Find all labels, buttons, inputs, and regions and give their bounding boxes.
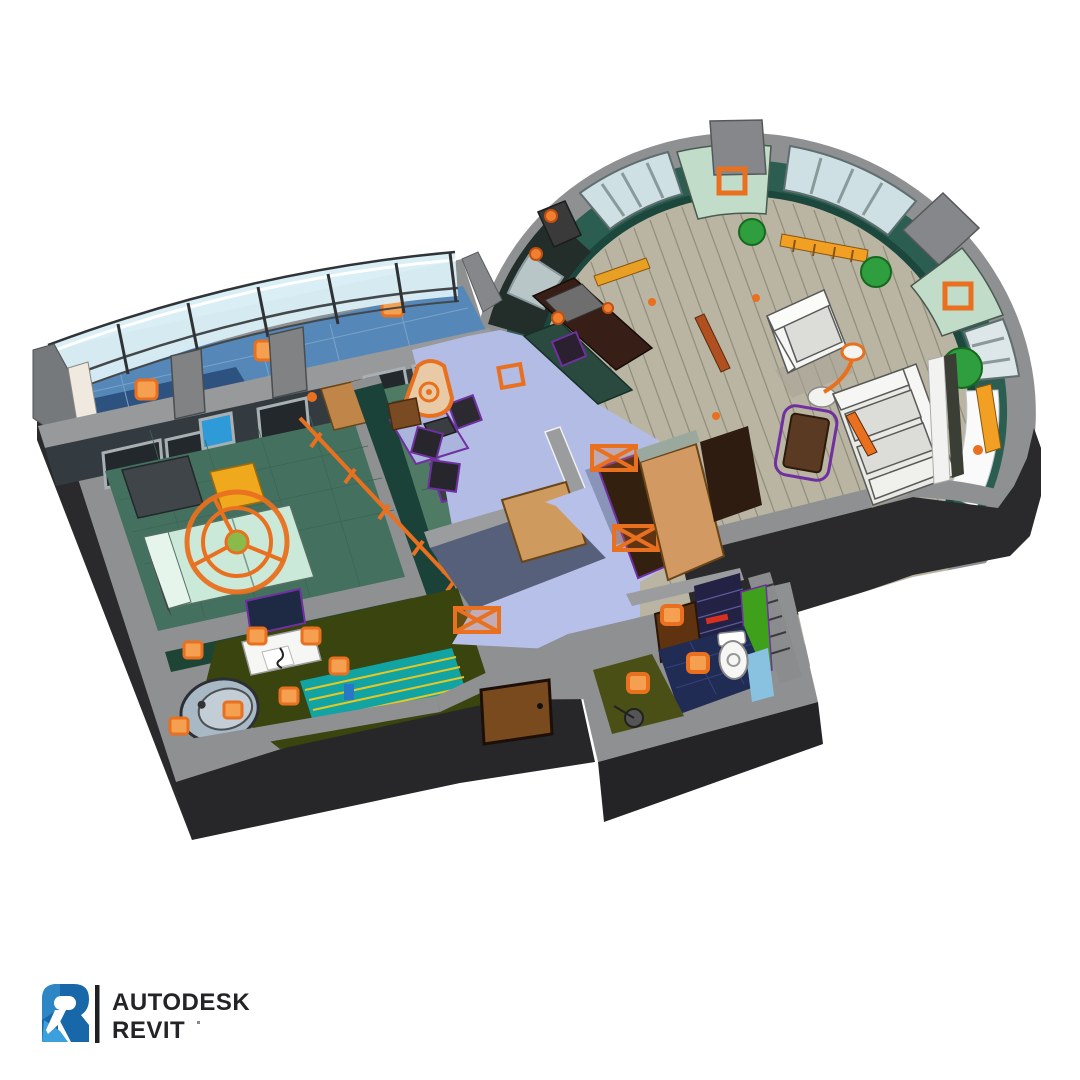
- svg-text:AUTODESK: AUTODESK: [112, 989, 250, 1016]
- svg-text:REVIT: REVIT: [112, 1017, 185, 1044]
